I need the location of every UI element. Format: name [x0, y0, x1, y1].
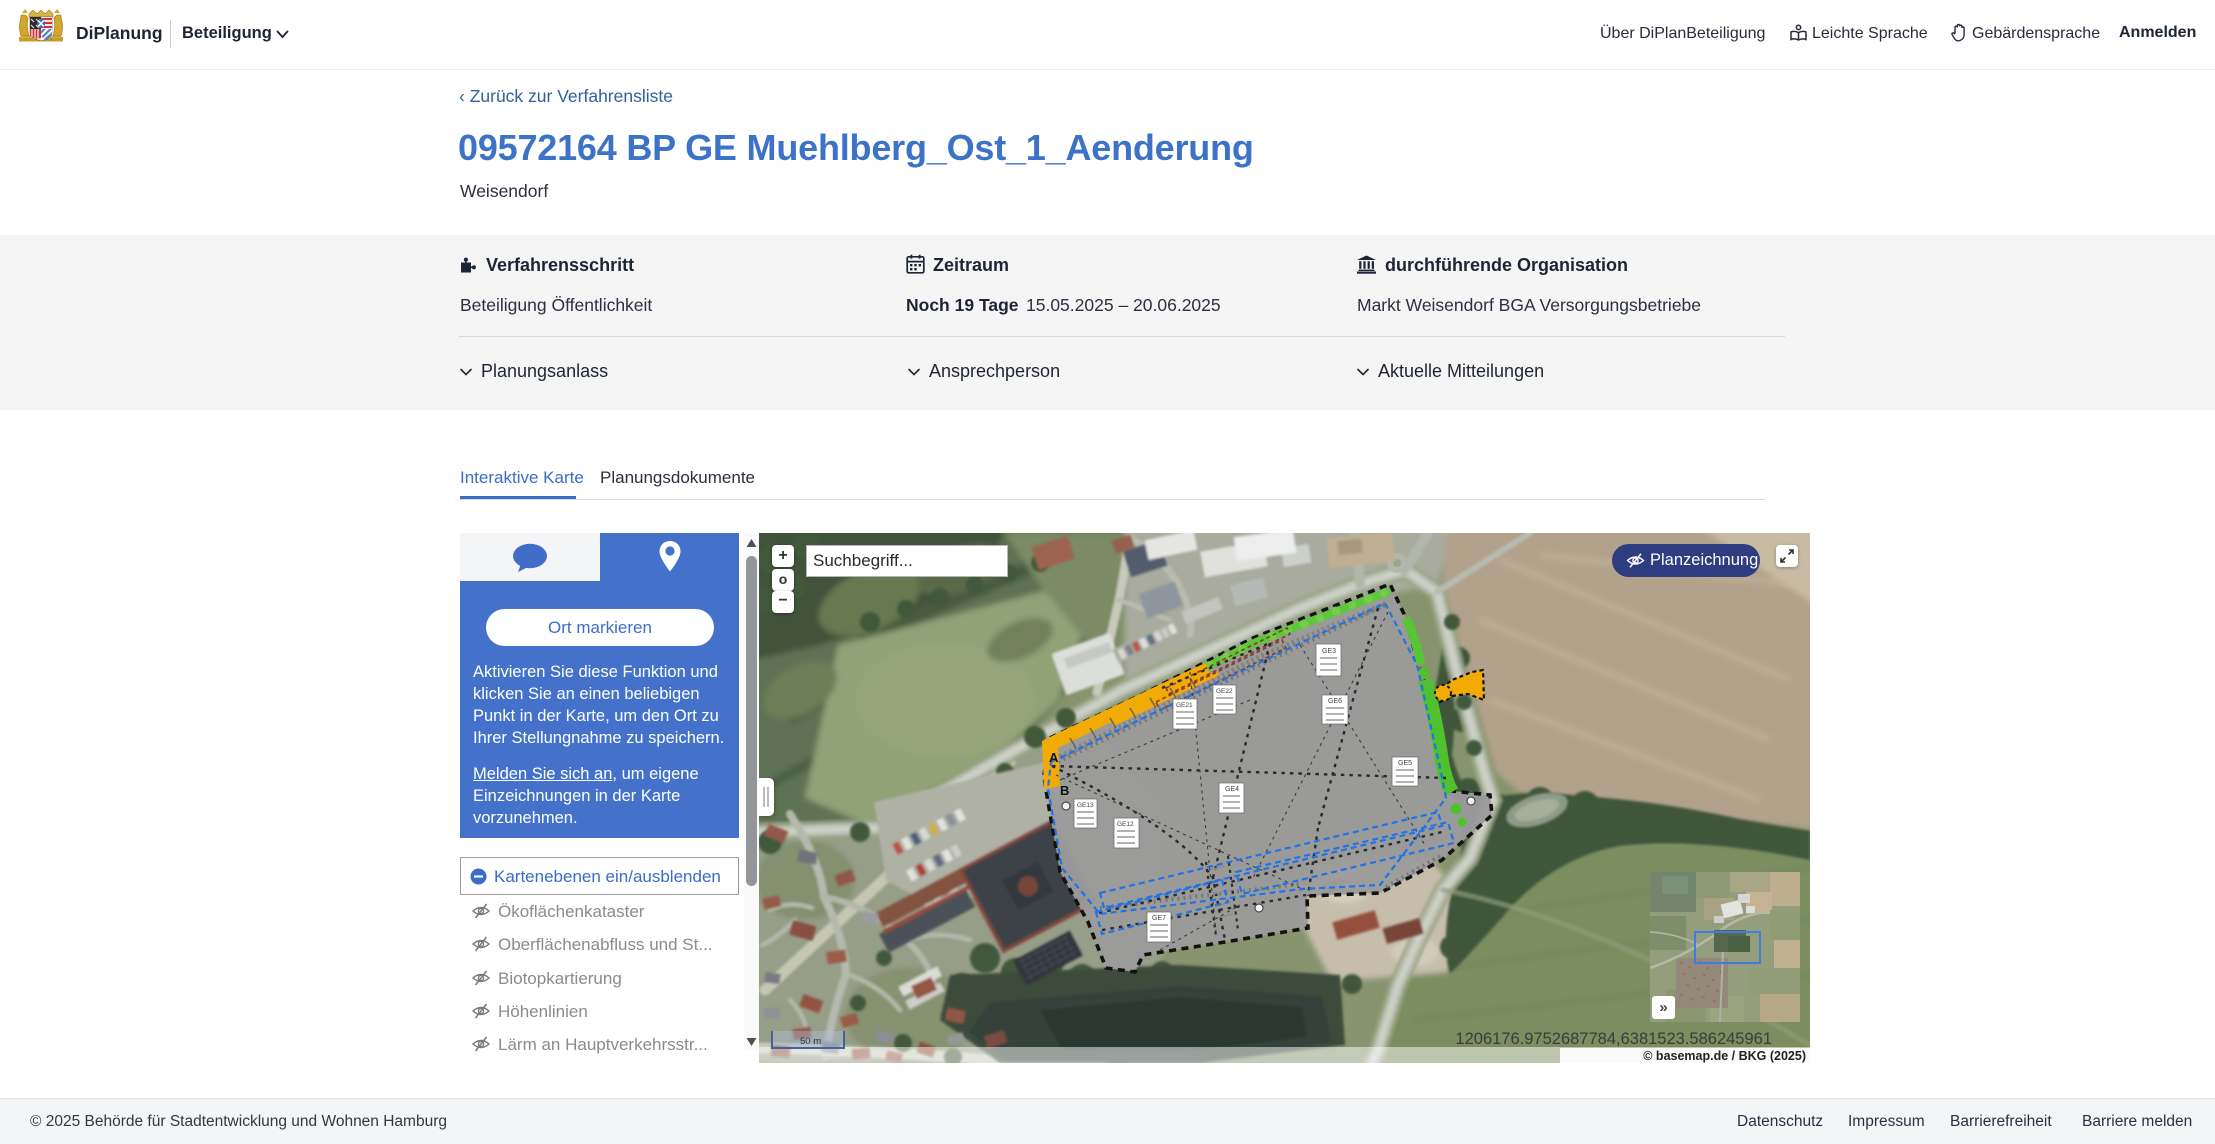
svg-text:GE22: GE22 [1216, 688, 1233, 695]
svg-text:GE7: GE7 [1152, 915, 1166, 922]
svg-text:A: A [1049, 750, 1059, 765]
svg-text:© basemap.de / BKG (2025): © basemap.de / BKG (2025) [1643, 1049, 1806, 1063]
svg-text:GE5: GE5 [1398, 760, 1412, 767]
svg-text:GE13: GE13 [1077, 802, 1094, 809]
svg-text:B: B [1060, 783, 1069, 798]
svg-text:GE3: GE3 [1322, 648, 1336, 655]
svg-text:GE6: GE6 [1328, 698, 1342, 705]
svg-text:GE12: GE12 [1117, 821, 1134, 828]
svg-text:GE4: GE4 [1225, 786, 1239, 793]
svg-text:50 m: 50 m [800, 1036, 821, 1047]
svg-text:GE21: GE21 [1176, 702, 1193, 709]
svg-text:1206176.9752687784,6381523.586: 1206176.9752687784,6381523.586245961 [1455, 1030, 1772, 1048]
